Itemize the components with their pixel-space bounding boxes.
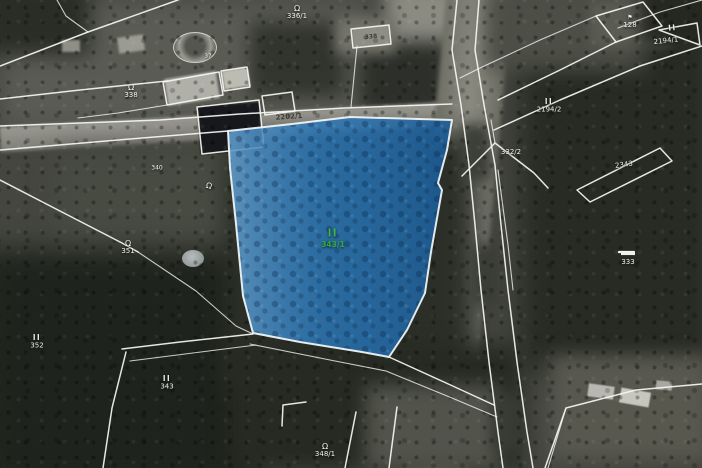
boundary-line (282, 402, 306, 426)
building-outline (221, 67, 250, 91)
building-338-outline (351, 25, 391, 48)
boundary-line (0, 0, 178, 66)
boundary-line (351, 46, 357, 107)
boundary-line (389, 407, 397, 468)
selected-parcel-texture (228, 117, 452, 357)
parcel-2343-outline (577, 148, 672, 202)
boundary-line (0, 81, 167, 99)
boundary-line (0, 131, 228, 150)
boundary-line (122, 334, 253, 349)
boundary-line (462, 143, 548, 188)
boundary-line (389, 357, 494, 405)
boundary-line (138, 252, 253, 334)
boundary-line (0, 180, 138, 252)
boundary-line (548, 408, 566, 468)
map-canvas[interactable]: Ω336/1Ω338373382202/1⚑128II2194/1II2194/… (0, 0, 702, 468)
boundary-line (491, 120, 495, 143)
boundary-line (130, 345, 256, 361)
building-outline (163, 72, 223, 105)
boundary-line (494, 46, 702, 130)
boundary-line (545, 384, 702, 468)
boundary-line (460, 16, 596, 78)
boundary-line (345, 412, 356, 468)
boundary-line (103, 352, 126, 468)
boundary-line (57, 0, 88, 32)
cadastral-lines-layer (0, 0, 702, 468)
parcel-128-outline (596, 2, 662, 42)
boundary-line (78, 105, 167, 118)
boundary-line (475, 0, 533, 468)
boundary-line (498, 42, 616, 100)
selected-parcel-group (228, 117, 452, 357)
parcel-2194-1-outline (659, 23, 700, 45)
